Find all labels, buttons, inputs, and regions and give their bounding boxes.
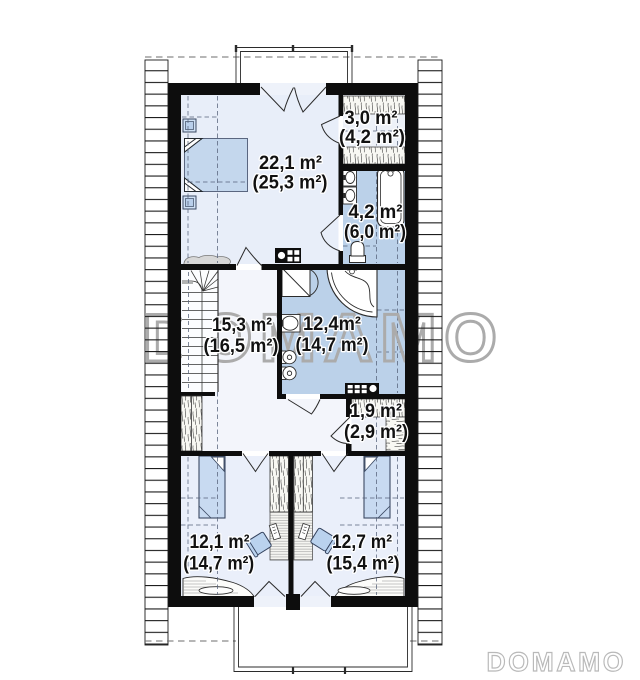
svg-text:22,1 m²: 22,1 m² [259, 153, 322, 174]
svg-text:12,1 m²: 12,1 m² [190, 532, 250, 553]
svg-text:(15,4 m²): (15,4 m²) [327, 554, 400, 575]
svg-text:15,3 m²: 15,3 m² [212, 315, 272, 336]
svg-text:3,0 m²: 3,0 m² [345, 108, 398, 129]
svg-text:1,9 m²: 1,9 m² [350, 401, 402, 422]
svg-text:4,2 m²: 4,2 m² [349, 202, 403, 223]
svg-text:(14,7 m²): (14,7 m²) [183, 554, 254, 575]
svg-text:(6,0 m²): (6,0 m²) [344, 222, 406, 243]
svg-text:(2,9 m²): (2,9 m²) [344, 422, 408, 443]
svg-text:12,4m²: 12,4m² [303, 314, 361, 335]
svg-text:(4,2 m²): (4,2 m²) [339, 127, 405, 148]
svg-text:(25,3 m²): (25,3 m²) [253, 173, 328, 194]
svg-text:12,7 m²: 12,7 m² [332, 532, 392, 553]
svg-text:(14,7 m²): (14,7 m²) [296, 335, 369, 356]
svg-text:(16,5 m²): (16,5 m²) [204, 336, 279, 357]
